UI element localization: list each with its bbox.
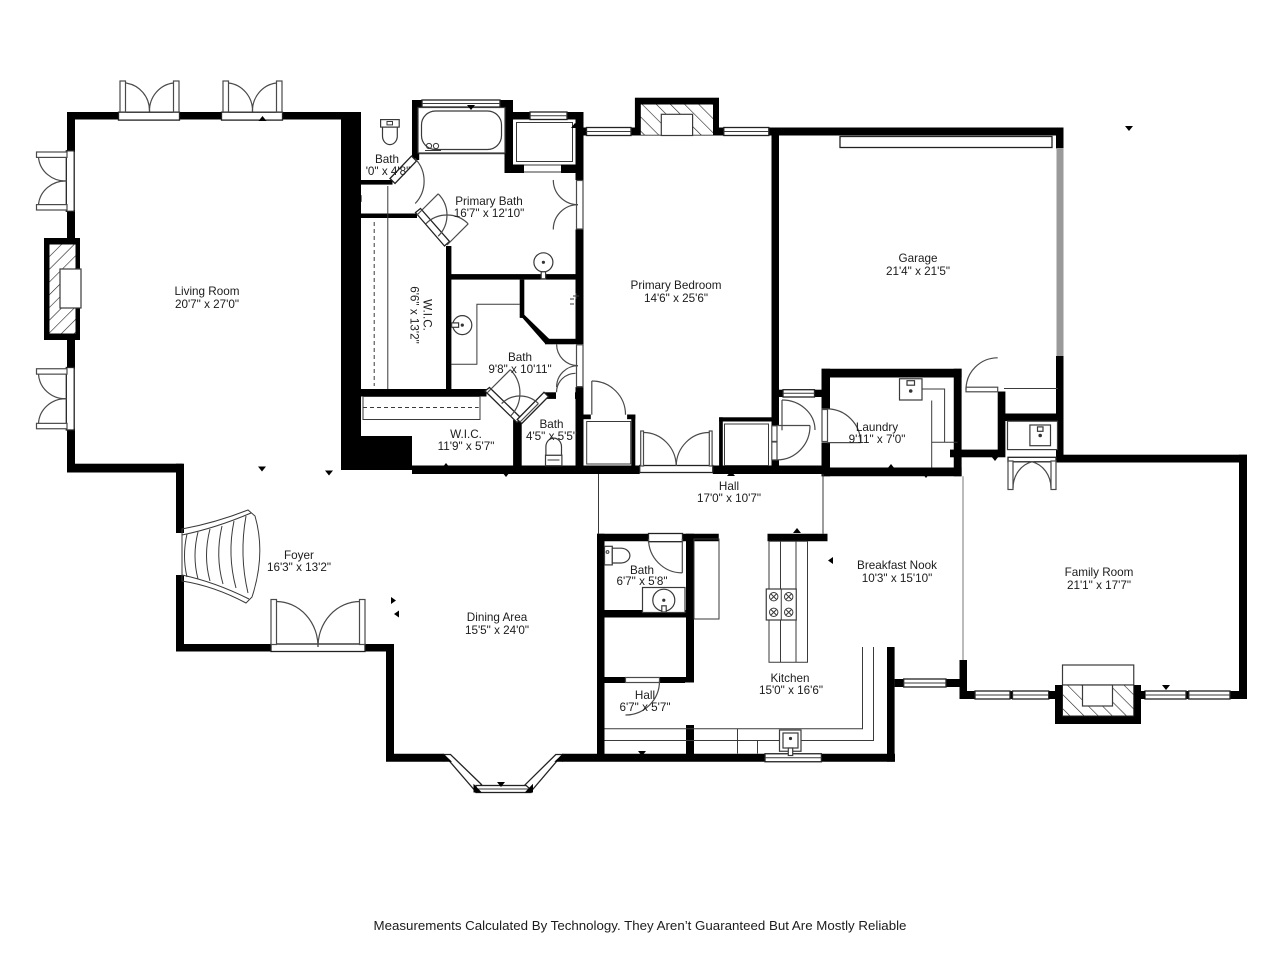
svg-text:Primary Bedroom: Primary Bedroom	[631, 279, 722, 292]
svg-text:6'7" x 5'7": 6'7" x 5'7"	[619, 701, 670, 714]
svg-text:Dining Area: Dining Area	[467, 611, 528, 624]
svg-text:20'7" x 27'0": 20'7" x 27'0"	[175, 298, 239, 311]
svg-text:W.I.C.: W.I.C.	[421, 299, 434, 331]
svg-text:16'7" x 12'10": 16'7" x 12'10"	[454, 207, 525, 220]
svg-text:21'1" x 17'7": 21'1" x 17'7"	[1067, 579, 1131, 592]
svg-text:Garage: Garage	[899, 252, 938, 265]
svg-text:15'0" x 16'6": 15'0" x 16'6"	[759, 684, 823, 697]
svg-text:14'6" x 25'6": 14'6" x 25'6"	[644, 292, 708, 305]
svg-text:Family Room: Family Room	[1065, 566, 1134, 579]
svg-text:10'3" x 15'10": 10'3" x 15'10"	[862, 572, 933, 585]
svg-text:15'5" x 24'0": 15'5" x 24'0"	[465, 624, 529, 637]
svg-text:9'11" x 7'0": 9'11" x 7'0"	[849, 433, 906, 446]
svg-text:9'8" x 10'11": 9'8" x 10'11"	[488, 363, 551, 376]
svg-text:21'4" x 21'5": 21'4" x 21'5"	[886, 265, 950, 278]
svg-text:Measurements Calculated By Tec: Measurements Calculated By Technology. T…	[374, 918, 907, 933]
svg-text:Breakfast Nook: Breakfast Nook	[857, 559, 937, 572]
svg-text:16'3" x 13'2": 16'3" x 13'2"	[267, 561, 331, 574]
svg-text:17'0" x 10'7": 17'0" x 10'7"	[697, 492, 761, 505]
svg-text:11'9" x 5'7": 11'9" x 5'7"	[438, 440, 495, 453]
svg-text:Living Room: Living Room	[175, 285, 240, 298]
svg-text:4'5" x 5'5": 4'5" x 5'5"	[526, 430, 577, 443]
svg-text:'0" x 4'8": '0" x 4'8"	[366, 165, 411, 178]
svg-text:6'7" x 5'8": 6'7" x 5'8"	[616, 575, 667, 588]
svg-text:6'6" x 13'2": 6'6" x 13'2"	[408, 286, 421, 344]
